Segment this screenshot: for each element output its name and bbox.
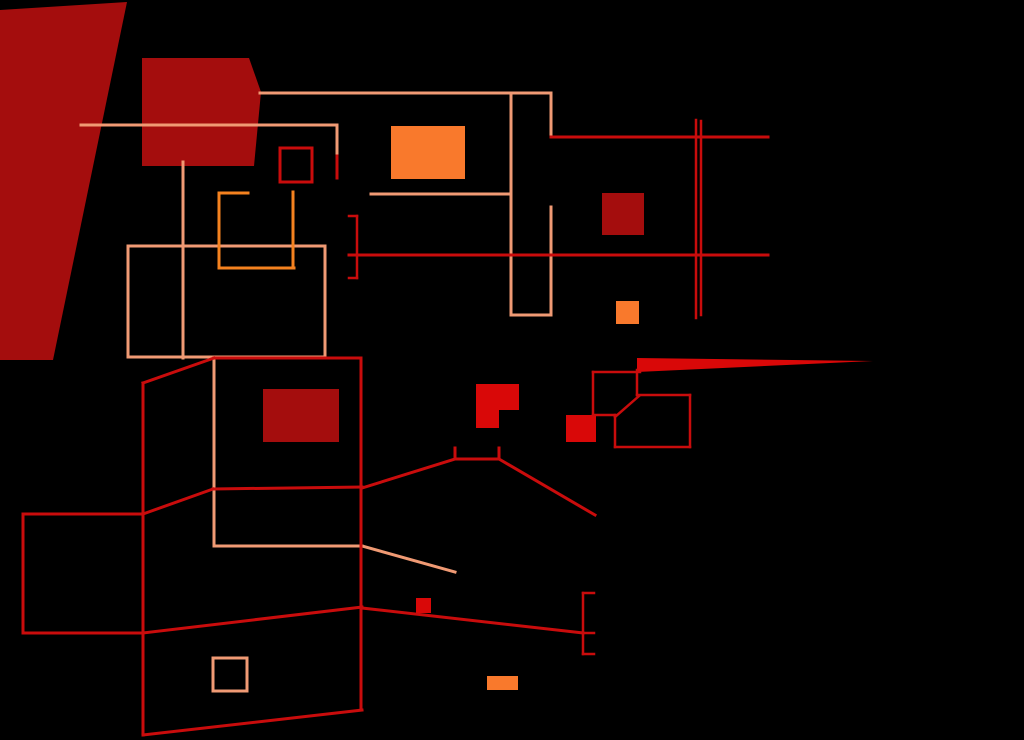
item-orange-rect-bottom: [487, 676, 518, 690]
map-wall-line: [143, 710, 362, 735]
room-red-small-square: [280, 148, 312, 182]
automap-canvas[interactable]: [0, 0, 1024, 740]
sector-upper-hexagon: [142, 58, 261, 166]
map-wall-line: [143, 489, 213, 514]
marker-l-shape: [476, 384, 519, 428]
map-wall-line: [362, 608, 583, 633]
marker-long-spike: [637, 358, 873, 372]
marker-red-square-small: [416, 598, 431, 613]
map-wall-line: [213, 487, 362, 489]
map-wall-line: [499, 459, 595, 515]
item-orange-rect-top: [391, 126, 465, 179]
map-wall-line: [362, 459, 455, 488]
sector-large-left-trapezoid: [0, 2, 127, 360]
map-wall-line: [143, 358, 214, 383]
marker-red-square-mid: [566, 415, 596, 442]
room-salmon-small-square: [213, 658, 247, 691]
item-orange-square-mid: [616, 301, 639, 324]
sector-dark-square-right: [602, 193, 644, 235]
map-wall-line: [362, 546, 455, 572]
sector-dark-rect-mid-left: [263, 389, 339, 442]
map-wall-line: [615, 396, 639, 417]
map-wall-line: [143, 607, 362, 633]
room-salmon-large: [128, 246, 325, 357]
automap-viewport[interactable]: [0, 0, 1024, 740]
